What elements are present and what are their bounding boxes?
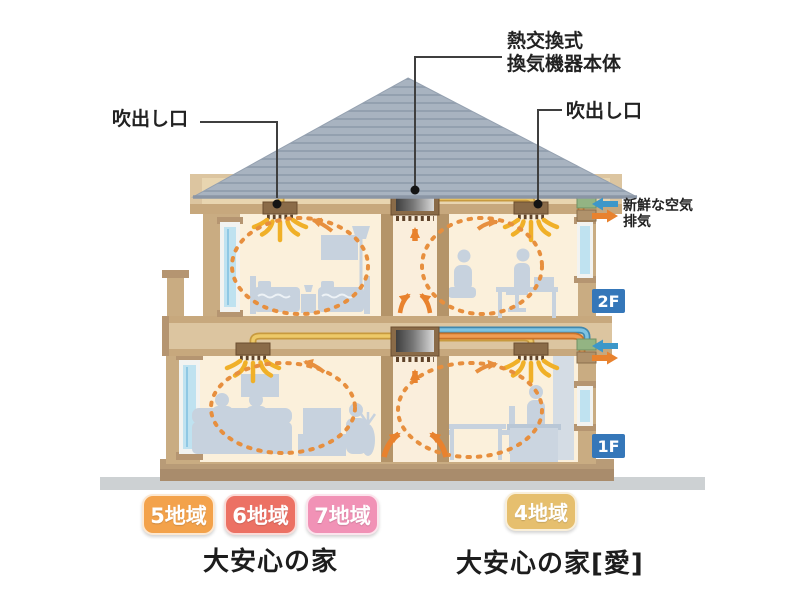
outlet-label-right: 吹出し口 [566,96,642,123]
window-1f-right [574,381,596,431]
climate-zones-left: 5地域 6地域 7地域 [142,494,379,535]
zone-badge-5: 5地域 [142,494,215,535]
zone-badge-6: 6地域 [224,494,297,535]
heat-exchanger-unit-1f [391,327,439,360]
zone-badge-7: 7地域 [306,494,379,535]
heat-exchanger-label-line2: 換気機器本体 [507,53,621,76]
floor-badge-1f: 1F [592,434,625,458]
zone-badge-4: 4地域 [505,492,577,531]
window-2f-right [574,217,596,283]
exhaust-label: 排気 [623,211,651,231]
heat-exchanger-label: 熱交換式 換気機器本体 [507,30,621,76]
window-2f-left [217,217,243,317]
left-parapet [162,270,189,316]
floor-badge-2f: 2F [592,289,625,313]
product-name-right: 大安心の家[愛] [456,543,644,580]
heat-exchanger-label-line1: 熱交換式 [507,30,621,53]
product-name-left: 大安心の家 [203,541,338,578]
ventilation-diagram: 吹出し口 熱交換式 換気機器本体 吹出し口 新鮮な空気 排気 2F 1F 5地域… [0,0,800,600]
outlet-label-left: 吹出し口 [112,104,188,131]
climate-zones-right: 4地域 [505,492,577,531]
house-cross-section [0,0,800,600]
